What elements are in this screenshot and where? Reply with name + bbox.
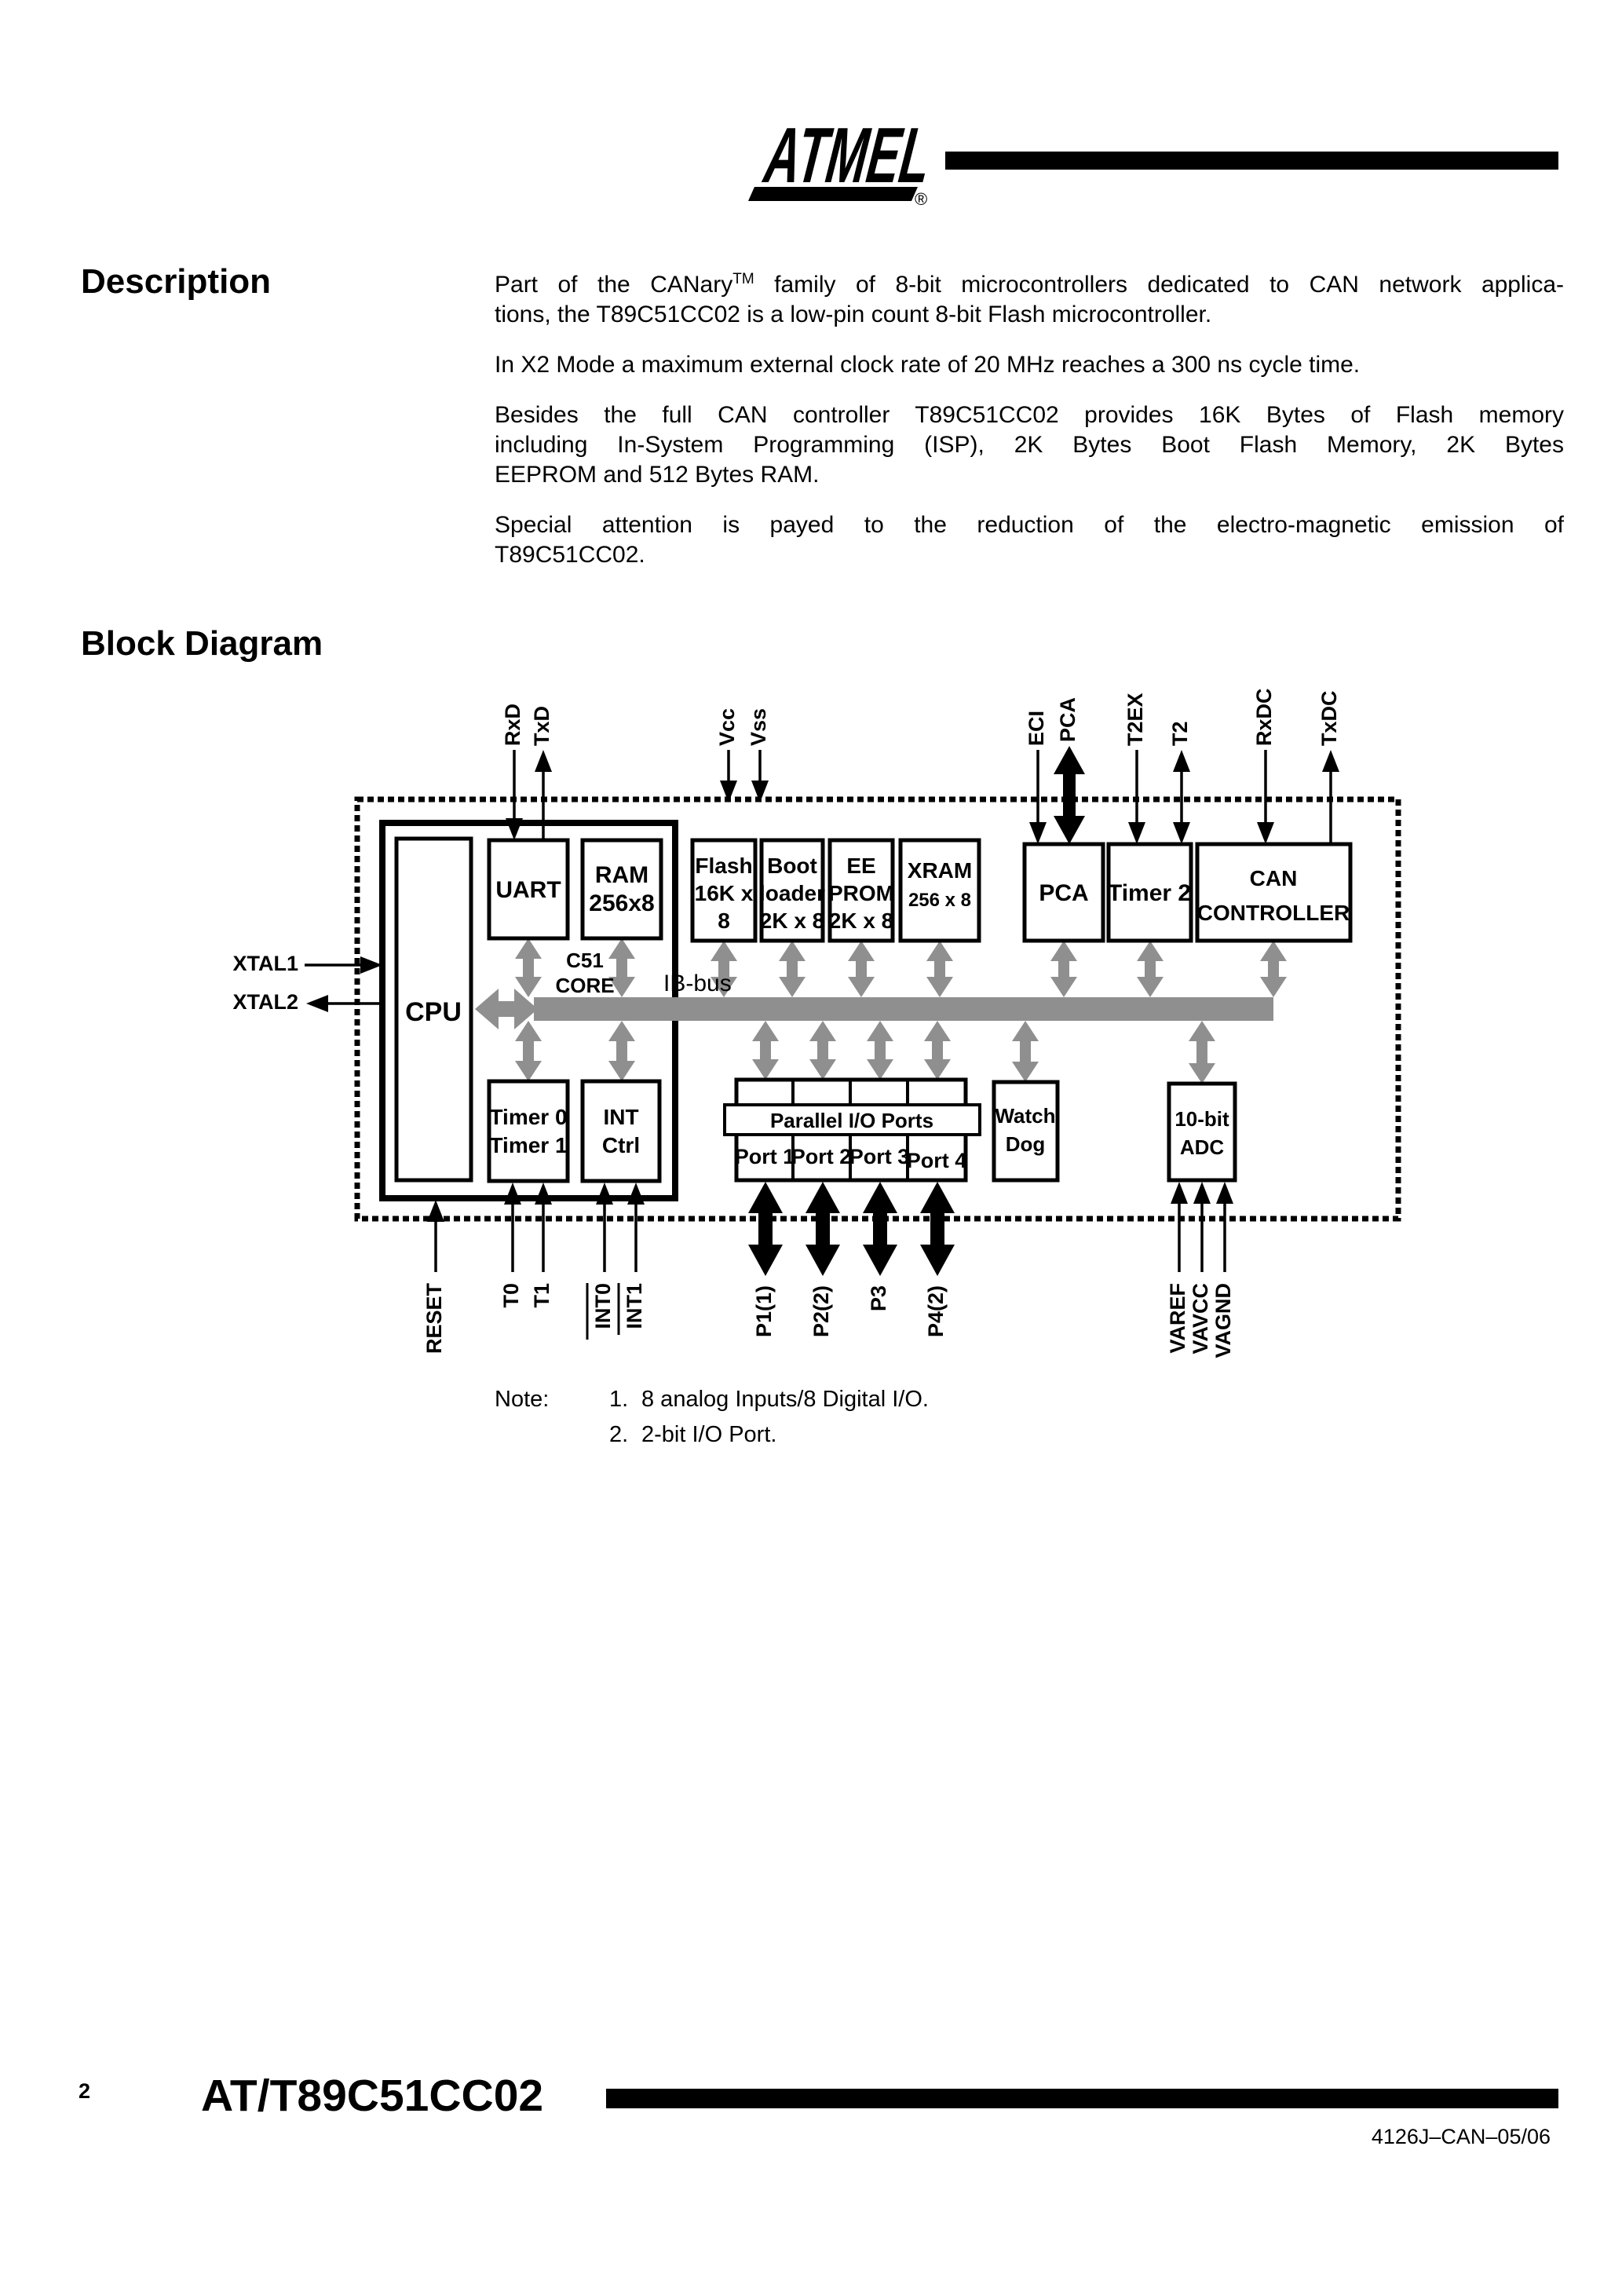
p3-pin-label: P3 [867,1285,890,1311]
bootloader-label: loader [759,881,825,905]
rxd-arrowhead [506,818,523,840]
paragraph-text: family of 8-bit microcontrollers dedicat… [754,272,1564,298]
adc-label: 10-bit [1174,1107,1229,1131]
vss-pin-label: Vss [747,708,770,746]
t0-arrowhead [504,1183,521,1205]
paragraph-text: Part of the CANary [495,272,732,298]
note-line: 2. 2-bit I/O Port. [495,1422,1091,1457]
txd-arrowhead [535,750,552,772]
t1-pin-label: T1 [530,1283,553,1308]
paragraph-line: tions, the T89C51CC02 is a low-pin count… [495,300,1564,330]
adc-label: ADC [1180,1135,1225,1159]
note-label: Note: [495,1387,549,1413]
varef-arrowhead [1171,1182,1188,1204]
p1-pin-label: P1(1) [752,1285,776,1337]
bus-arrow-can [1260,941,1287,997]
footer-title: AT/T89C51CC02 [201,2070,543,2122]
vcc-arrowhead [720,781,737,803]
port1-label: Port 1 [735,1145,795,1168]
bus-arrow-port3 [867,1021,893,1080]
watchdog-box [994,1082,1058,1180]
note-item-text: 8 analog Inputs/8 Digital I/O. [641,1387,929,1413]
rxdc-pin-label: RxDC [1252,688,1276,746]
p4-port-arrow [920,1182,955,1276]
int-ctrl-label: INT [603,1105,638,1129]
watchdog-label: Dog [1006,1132,1046,1156]
bus-arrow-port4 [924,1021,951,1080]
pca-label: PCA [1039,880,1088,906]
ib-bus-bar [534,997,1273,1021]
bus-arrow-bootloader [779,941,806,997]
bootloader-label: 2K x 8 [760,909,825,933]
bus-arrow-port1 [752,1021,779,1080]
c51-core-label: C51 [566,949,604,972]
txdc-pin-label: TxDC [1317,690,1341,746]
datasheet-page: ATMEL ® Description Part of the CANaryTM… [0,0,1622,2296]
paragraph-line: Besides the full CAN controller T89C51CC… [495,400,1564,430]
txd-pin-label: TxD [530,706,553,746]
can-controller-box [1197,844,1350,941]
note-item-number: 2. [609,1422,628,1448]
t2ex-pin-label: T2EX [1123,693,1147,746]
block-diagram-heading: Block Diagram [81,624,323,664]
bus-arrow-xram [926,941,953,997]
ib-bus-label: IB-bus [663,971,732,996]
bus-arrow-uart [515,938,542,997]
paragraph-line: In X2 Mode a maximum external clock rate… [495,350,1564,380]
bus-arrow-pca [1050,941,1077,997]
description-heading: Description [81,262,271,302]
timer01-box [489,1081,568,1181]
parallel-io-label: Parallel I/O Ports [770,1109,933,1132]
t2-arrowhead-down [1173,822,1190,844]
paragraph-line: T89C51CC02. [495,540,1564,570]
vagnd-pin-label: VAGND [1211,1283,1235,1358]
bus-arrow-watchdog [1012,1021,1039,1082]
note-item-text: 2-bit I/O Port. [641,1422,776,1448]
xtal2-arrowhead [306,995,328,1012]
uart-label: UART [495,877,561,903]
bus-arrow-int [608,1021,635,1081]
vcc-pin-label: Vcc [715,708,739,746]
xtal2-pin-label: XTAL2 [232,990,298,1014]
xram-label: 256 x 8 [908,890,971,911]
atmel-logo-letters: ATMEL [756,112,930,200]
eeprom-label: EE [846,854,875,878]
port3-label: Port 3 [849,1145,910,1168]
can-controller-label: CONTROLLER [1197,901,1350,925]
ram-box [583,840,661,938]
port2-label: Port 2 [791,1145,852,1168]
paragraph-line: including In-System Programming (ISP), 2… [495,430,1564,460]
can-controller-label: CAN [1250,866,1298,890]
bus-arrow-port2 [809,1021,836,1080]
p2-pin-label: P2(2) [809,1285,833,1337]
txdc-arrowhead [1322,750,1339,772]
pca-pin-arrow [1054,746,1085,844]
eeprom-label: 2K x 8 [829,909,894,933]
t2-pin-label: T2 [1168,721,1192,746]
timer01-label: Timer 1 [489,1133,567,1157]
bootloader-label: Boot [767,854,817,878]
int0-arrowhead [596,1183,613,1205]
trademark-sup: TM [732,271,754,287]
p3-port-arrow [863,1182,897,1276]
vavcc-arrowhead [1193,1182,1211,1204]
block-diagram: CPU UART RAM 256x8 Flash 16K x 8 Boot lo… [220,660,1452,1421]
xram-label: XRAM [908,858,972,883]
reset-arrowhead [427,1200,444,1222]
vavcc-pin-label: VAVCC [1189,1283,1212,1355]
footer-rule [606,2089,1558,2108]
flash-label: 8 [718,909,730,933]
eci-pin-label: ECI [1025,711,1048,746]
atmel-logo: ATMEL ® [742,110,930,208]
p4-pin-label: P4(2) [924,1285,948,1337]
t0-pin-label: T0 [499,1283,523,1308]
bus-arrow-eeprom [848,941,875,997]
pca-pin-label: PCA [1056,697,1080,742]
int1-arrowhead [627,1183,645,1205]
eci-arrowhead [1029,822,1047,844]
int-ctrl-box [583,1081,659,1181]
int-ctrl-label: Ctrl [602,1133,640,1157]
header-rule [945,152,1558,170]
int0-pin-label: INT0 [591,1283,615,1329]
xtal1-arrowhead [360,956,382,974]
reset-pin-label: RESET [422,1283,446,1355]
atmel-logo-underline [748,187,918,201]
vagnd-arrowhead [1216,1182,1233,1204]
varef-pin-label: VAREF [1166,1283,1189,1354]
bus-arrow-timer2 [1137,941,1164,997]
rxd-pin-label: RxD [501,704,524,746]
c51-core-label: CORE [555,974,614,997]
t1-arrowhead [535,1183,552,1205]
eeprom-label: PROM [828,881,894,905]
registered-mark: ® [915,189,927,208]
ram-label: 256x8 [589,890,654,916]
cpu-label: CPU [405,997,462,1027]
int1-pin-label: INT1 [623,1283,646,1329]
rxdc-arrowhead [1257,822,1274,844]
timer2-label: Timer 2 [1108,880,1191,906]
port4-label: Port 4 [907,1149,967,1172]
paragraph-line: EEPROM and 512 Bytes RAM. [495,460,1564,490]
p2-port-arrow [806,1182,840,1276]
ram-label: RAM [595,862,648,888]
document-id: 4126J–CAN–05/06 [1080,2125,1551,2149]
diagram-note: Note: 1. 8 analog Inputs/8 Digital I/O. … [495,1387,1091,1457]
description-body: Part of the CANaryTM family of 8-bit mic… [495,265,1564,570]
note-line: Note: 1. 8 analog Inputs/8 Digital I/O. [495,1387,1091,1422]
t2ex-arrowhead [1128,822,1145,844]
note-item-number: 1. [609,1387,628,1413]
adc-box [1169,1084,1235,1180]
t2-arrowhead-up [1173,750,1190,772]
paragraph-line: Special attention is payed to the reduct… [495,510,1564,540]
paragraph-line: Part of the CANaryTM family of 8-bit mic… [495,265,1564,300]
flash-label: 16K x [695,881,754,905]
xtal1-pin-label: XTAL1 [232,952,298,975]
watchdog-label: Watch [995,1104,1055,1128]
page-number: 2 [79,2079,90,2104]
p1-port-arrow [748,1182,783,1276]
flash-label: Flash [695,854,752,878]
bus-arrow-timer01 [515,1021,542,1081]
bus-arrow-adc [1189,1021,1215,1084]
timer01-label: Timer 0 [489,1105,567,1129]
atmel-logo-text: ATMEL [756,112,930,200]
